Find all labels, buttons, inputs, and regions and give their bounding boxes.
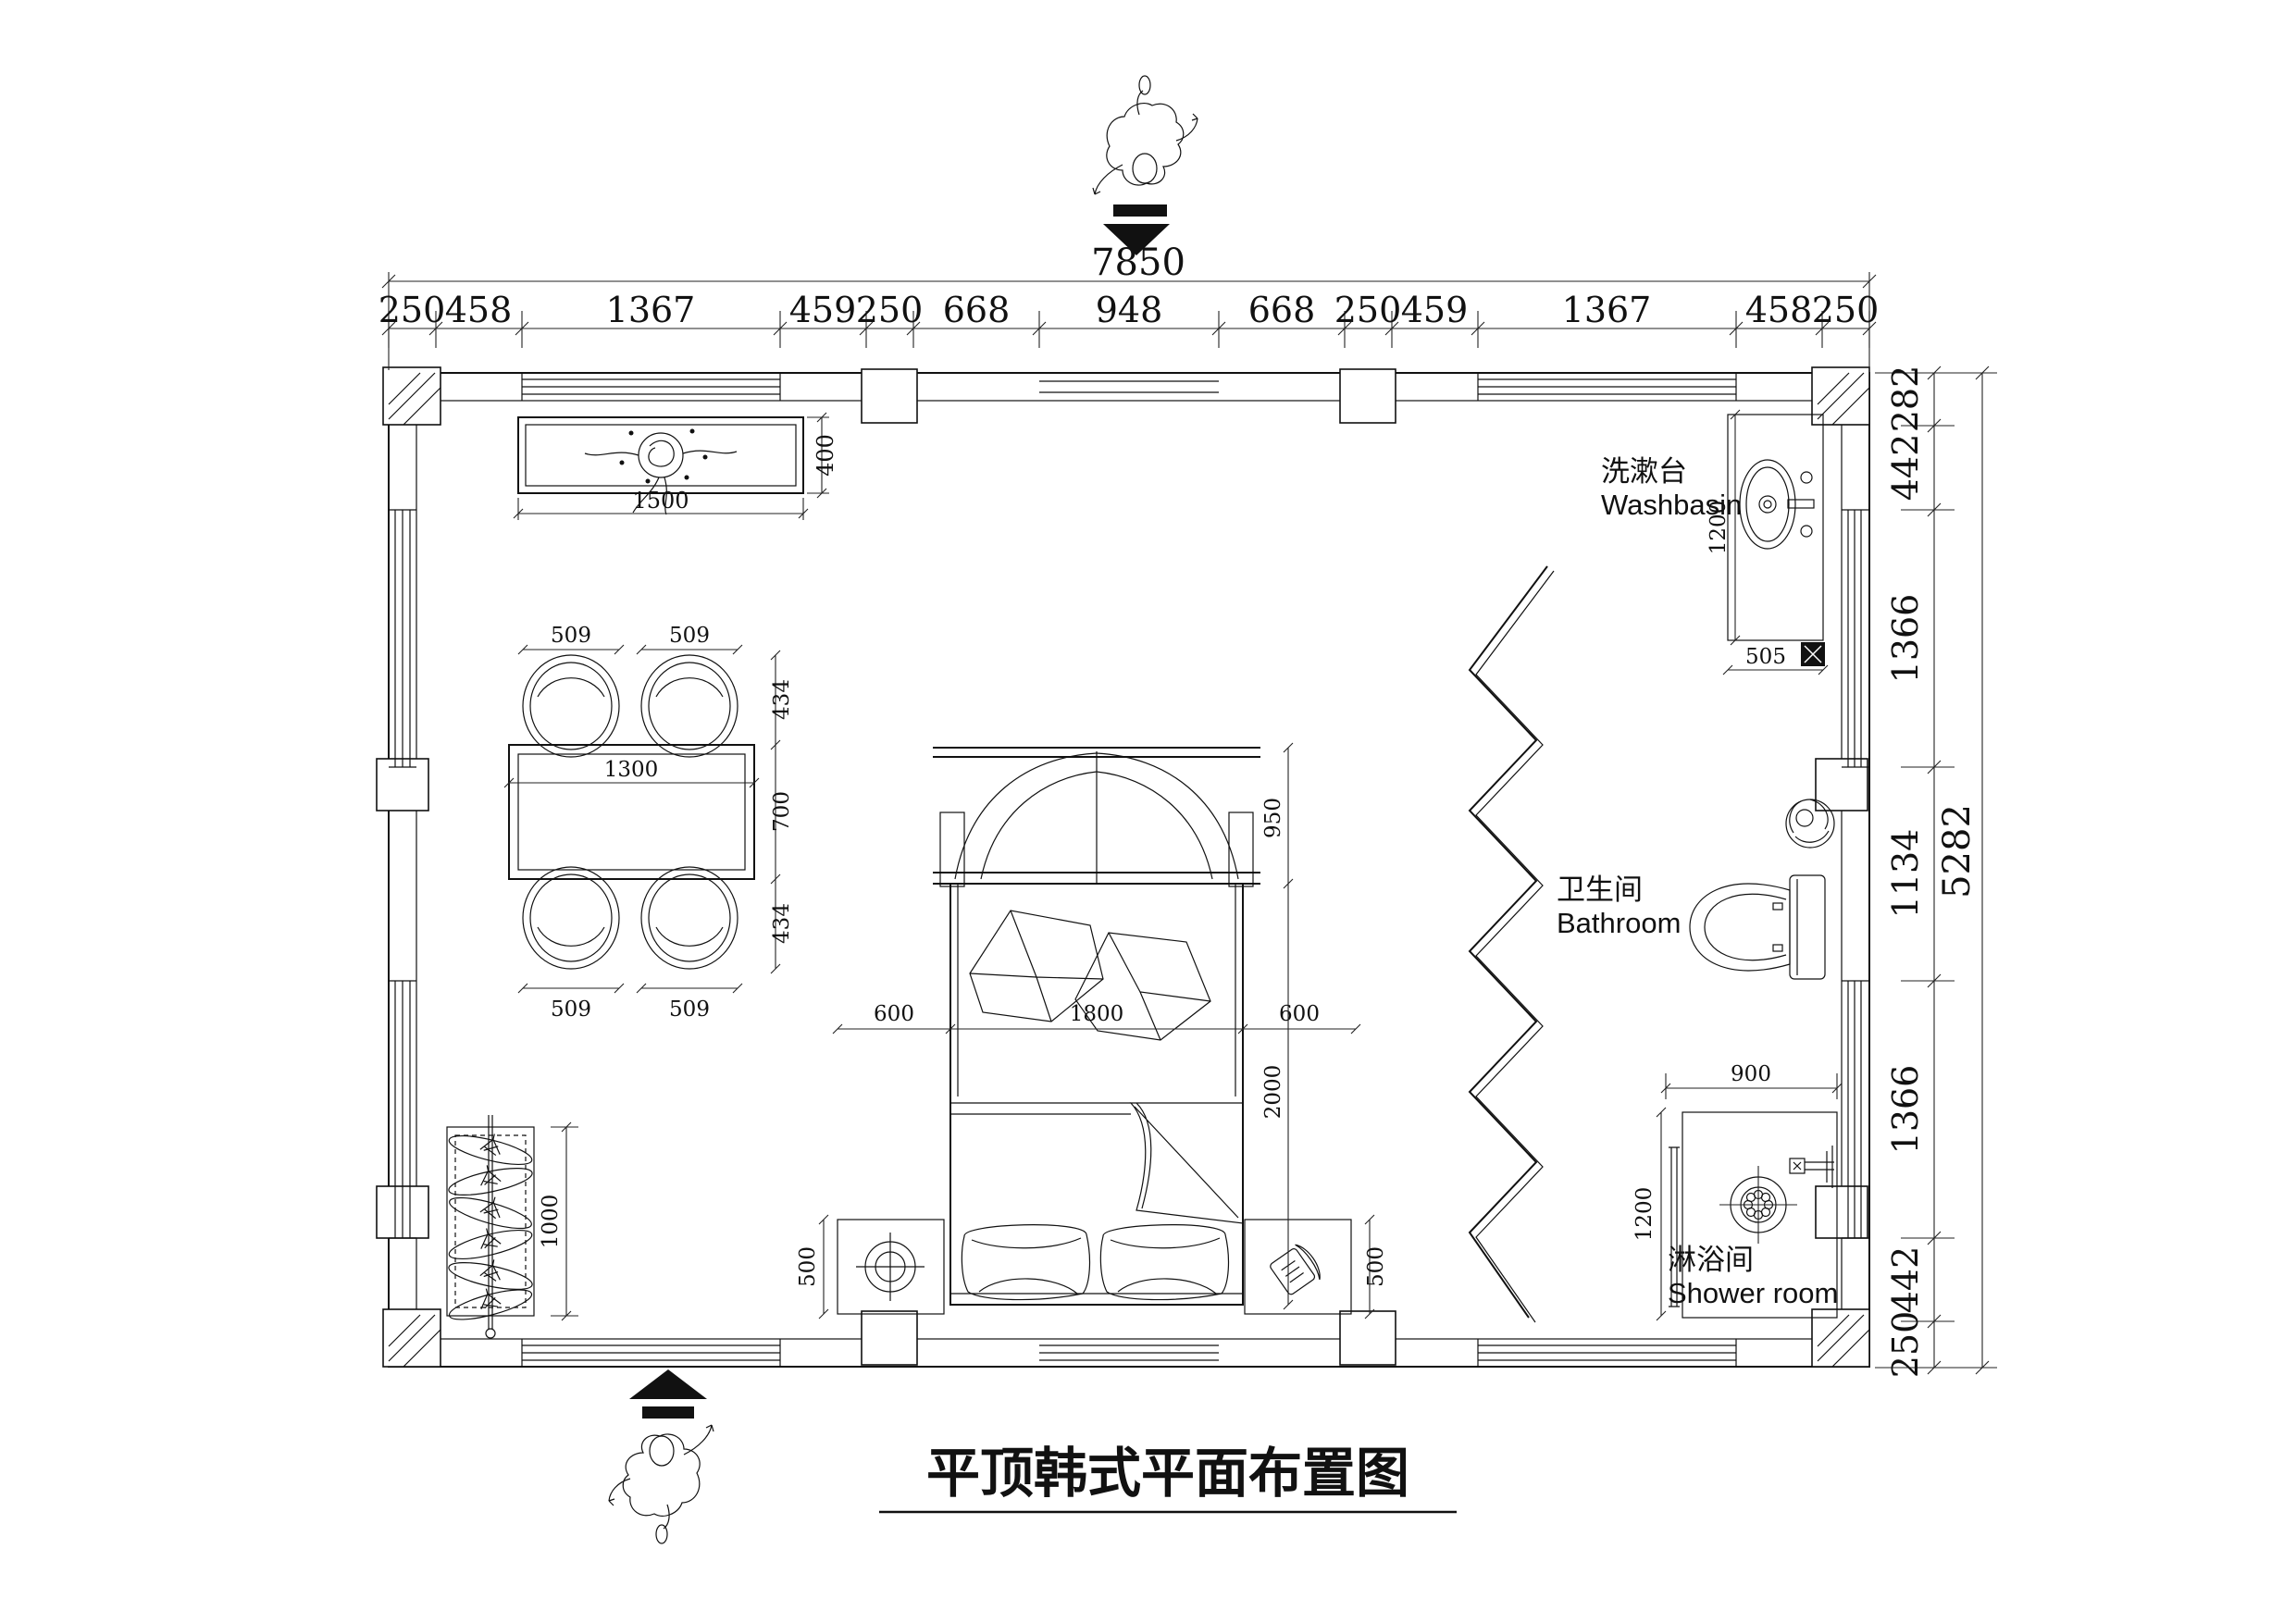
label-shower-en: Shower room [1668,1277,1838,1309]
dimension-right: 282 442 1366 1134 1366 442 250 5282 [1875,365,1997,1379]
dim-overall-height: 5282 [1936,804,1979,898]
dim-top-8: 250 [1334,290,1402,330]
pier [1340,1311,1396,1365]
dim-chair-depth-bottom: 434 [770,903,794,944]
dim-right-6: 250 [1885,1311,1926,1379]
dim-bed-length: 2000 [1261,1065,1285,1120]
dim-table-width: 1300 [604,758,659,782]
dim-washbasin-width: 505 [1745,645,1786,669]
entry-arrow-bottom-icon [629,1369,707,1399]
entry-arrow-bottom-bar [642,1406,694,1419]
dim-right-stand: 600 [1279,1002,1320,1026]
pier [1340,369,1396,423]
toilet-icon [1690,875,1825,979]
window-bottom-right [1478,1339,1736,1367]
dimension-top: 7850 250 458 1367 459 250 668 948 668 25… [379,242,1880,370]
page-title: 平顶韩式平面布置图 [926,1443,1409,1504]
entry-arrow-top-bar [1113,204,1167,217]
bed [950,884,1243,1305]
dim-headboard: 950 [1261,798,1285,838]
hanger [447,1251,536,1295]
lamp-icon [856,1233,925,1301]
tv-cabinet: 1500 400 [514,413,838,520]
chair [523,655,619,757]
corner-pier-bottom-left [383,1309,441,1367]
dim-top-0: 250 [379,290,446,330]
door-top-center [1039,381,1219,392]
chair [641,655,738,757]
person-top-icon [1093,76,1198,194]
label-bathroom-zh: 卫生间 [1557,873,1643,906]
dim-chair-bl: 509 [551,997,591,1022]
corner-pier-top-left [383,367,441,425]
washbasin-area: 1200 505 洗漱台 Washbasin [1601,410,1828,675]
dim-top-7: 668 [1248,290,1316,330]
window-right-upper [1842,510,1869,767]
telephone-icon [1268,1241,1325,1299]
shower-drain-icon [1719,1166,1797,1244]
hanger [447,1185,536,1234]
wardrobe-rack: 1000 [445,1115,578,1338]
dim-chair-depth-top: 434 [770,679,794,720]
label-shower-zh: 淋浴间 [1668,1244,1754,1276]
dim-shower-width: 900 [1731,1062,1771,1086]
label-washbasin-zh: 洗漱台 [1601,455,1687,488]
bed-headboard [933,748,1260,886]
dim-top-4: 250 [856,290,924,330]
dim-top-5: 668 [943,290,1011,330]
dim-top-3: 459 [789,290,857,330]
dim-right-2: 1366 [1885,594,1926,684]
window-left-upper [389,510,416,767]
dim-right-0: 282 [1885,365,1926,433]
dim-shower-depth: 1200 [1632,1187,1657,1242]
dim-top-2: 1367 [606,290,696,330]
chair [641,867,738,969]
dim-right-1: 442 [1885,434,1926,502]
window-top-right [1478,373,1736,401]
dim-top-6: 948 [1096,290,1163,330]
shower-head-icon [1790,1146,1834,1188]
faucet-icon [1788,500,1814,508]
nightstand-left [838,1220,944,1314]
entry-top [1093,76,1198,255]
shower-area: 900 1200 淋浴间 Shower room [1632,1062,1842,1320]
pier [862,1311,917,1365]
window-bottom-center [1039,1345,1219,1360]
bed-group: 600 1800 600 950 2000 500 500 [796,743,1388,1319]
dim-stand-right-depth: 500 [1364,1246,1388,1287]
door-bottom-left [522,1339,780,1367]
corner-pier-top-right [1812,367,1869,425]
person-bottom-icon [609,1425,714,1543]
dim-chair-tl: 509 [551,624,591,648]
nightstand-right [1245,1220,1351,1314]
bathroom-area: 卫生间 Bathroom [1557,799,1834,979]
hanger [445,1278,534,1326]
hanger [445,1157,534,1200]
pier [862,369,917,423]
dim-bed-width: 1800 [1070,1002,1124,1026]
dim-left-stand: 600 [874,1002,914,1026]
dim-top-1: 458 [445,290,513,330]
dim-right-4: 1366 [1885,1065,1926,1155]
label-washbasin-en: Washbasin [1601,489,1742,521]
dim-top-11: 458 [1745,290,1813,330]
dim-chair-br: 509 [669,997,710,1022]
dim-right-5: 442 [1885,1246,1926,1314]
folding-partition [1470,566,1554,1322]
drawing-title: 平顶韩式平面布置图 [879,1443,1457,1512]
floor-drain-round-icon [1786,799,1834,848]
entry-bottom [609,1369,714,1543]
hanger [447,1123,536,1170]
sink-icon [1740,460,1795,549]
dim-stand-left-depth: 500 [796,1246,820,1287]
floorplan-canvas: 7850 250 458 1367 459 250 668 948 668 25… [0,0,2296,1623]
dim-top-12: 250 [1812,290,1880,330]
dim-top-9: 459 [1401,290,1469,330]
hanger [445,1218,534,1264]
dim-tv-width: 1500 [632,488,689,514]
dim-tv-depth: 400 [813,434,838,477]
label-bathroom-en: Bathroom [1557,907,1681,939]
floorplan-drawing: 7850 250 458 1367 459 250 668 948 668 25… [0,0,2296,1623]
window-top-left [522,373,780,401]
pier [1816,1186,1868,1238]
chair [523,867,619,969]
dim-wardrobe-length: 1000 [539,1195,563,1249]
dim-table-depth: 700 [770,791,794,832]
dim-right-3: 1134 [1885,829,1926,919]
dining-set: 509 509 509 509 434 700 434 1300 [504,624,794,1022]
dim-chair-tr: 509 [669,624,710,648]
dim-top-10: 1367 [1562,290,1652,330]
